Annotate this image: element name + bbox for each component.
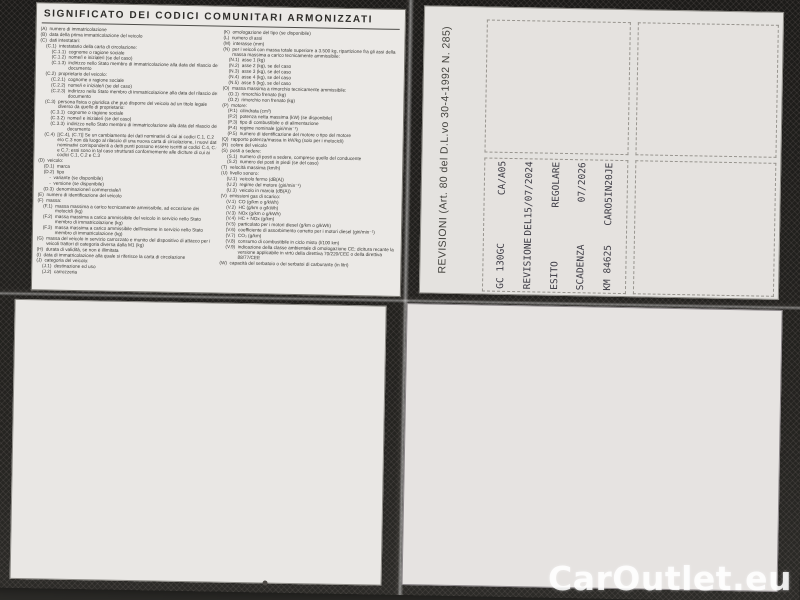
code-label: (W) [219, 260, 227, 265]
stamp-line: GC 130GCCA/A05 [495, 161, 508, 289]
stamp-line: SCADENZA07/2026 [575, 162, 588, 290]
stamp-line-label: REVISIONE [522, 238, 534, 290]
empty-panel-bottom-right [402, 303, 783, 592]
codes-column-left: (A)numero di immatricolazione(B)data del… [36, 26, 219, 293]
revisions-caption: REVISIONI (Art. 80 del D.L.vo 30-4-1992 … [436, 26, 453, 274]
code-label: (F.2) [43, 214, 53, 224]
code-label: (C.4) [44, 132, 55, 158]
caroutlet-watermark: CarOutlet.eu [548, 559, 792, 598]
stamp-line-label: KM 84625 [602, 245, 614, 291]
stamp-line-value: CARO5IN20JE [603, 163, 615, 226]
stamp-line: REVISIONEDEL15/07/2024 [522, 161, 535, 289]
code-label: (N) [223, 47, 230, 57]
code-label: (F) [37, 198, 43, 203]
code-label: (F.3) [43, 225, 53, 235]
stamp-line: KM 84625CARO5IN20JE [602, 163, 615, 291]
codes-columns: (A)numero di immatricolazione(B)data del… [32, 23, 405, 297]
code-label: (V.9) [225, 244, 235, 260]
stamp-line-label: SCADENZA [575, 244, 587, 290]
revision-stamp-area-3: GC 130GCCA/A05REVISIONEDEL15/07/2024ESIT… [482, 157, 628, 294]
codes-legend-box: SIGNIFICATO DEI CODICI COMUNITARI ARMONI… [31, 2, 406, 297]
stamp-line-label: GC 130GC [495, 243, 507, 289]
code-description: [(C.4), (C.7)] Se un cambiamento dei dat… [57, 132, 219, 161]
revision-stamp-area-1 [484, 20, 630, 156]
stamp-line-label: ESITO [548, 261, 560, 290]
codes-column-right: (K)omologazione del tipo (se disponibile… [219, 30, 402, 297]
code-item: (C.4)[(C.4), (C.7)] Se un cambiamento de… [38, 132, 218, 161]
revision-stamp-area-2 [635, 22, 778, 158]
code-label: (F.1) [43, 203, 53, 213]
stamp-line-value: 07/2026 [577, 162, 589, 202]
revisions-section-box: REVISIONI (Art. 80 del D.L.vo 30-4-1992 … [419, 5, 784, 300]
revision-stamp: GC 130GCCA/A05REVISIONEDEL15/07/2024ESIT… [495, 161, 615, 291]
code-label: (C.2.3) [51, 88, 65, 99]
stamp-line-value: REGOLARE [550, 162, 562, 208]
punch-hole-mark [263, 580, 268, 585]
stamp-line-value: DEL15/07/2024 [523, 161, 535, 236]
code-label: (C.3.3) [50, 121, 64, 132]
stamp-line-value: CA/A05 [497, 161, 509, 196]
code-label: (J.2) [42, 269, 51, 274]
photo-background: SIGNIFICATO DEI CODICI COMUNITARI ARMONI… [0, 0, 800, 600]
revision-stamp-area-4 [633, 160, 776, 297]
registration-document-sheet: SIGNIFICATO DEI CODICI COMUNITARI ARMONI… [0, 0, 800, 600]
code-label: (G) [37, 236, 44, 246]
code-label: (C.1.3) [51, 61, 65, 72]
stamp-line: ESITOREGOLARE [548, 162, 561, 290]
empty-panel-bottom-left [10, 299, 387, 586]
code-label: (C.3) [45, 99, 56, 109]
